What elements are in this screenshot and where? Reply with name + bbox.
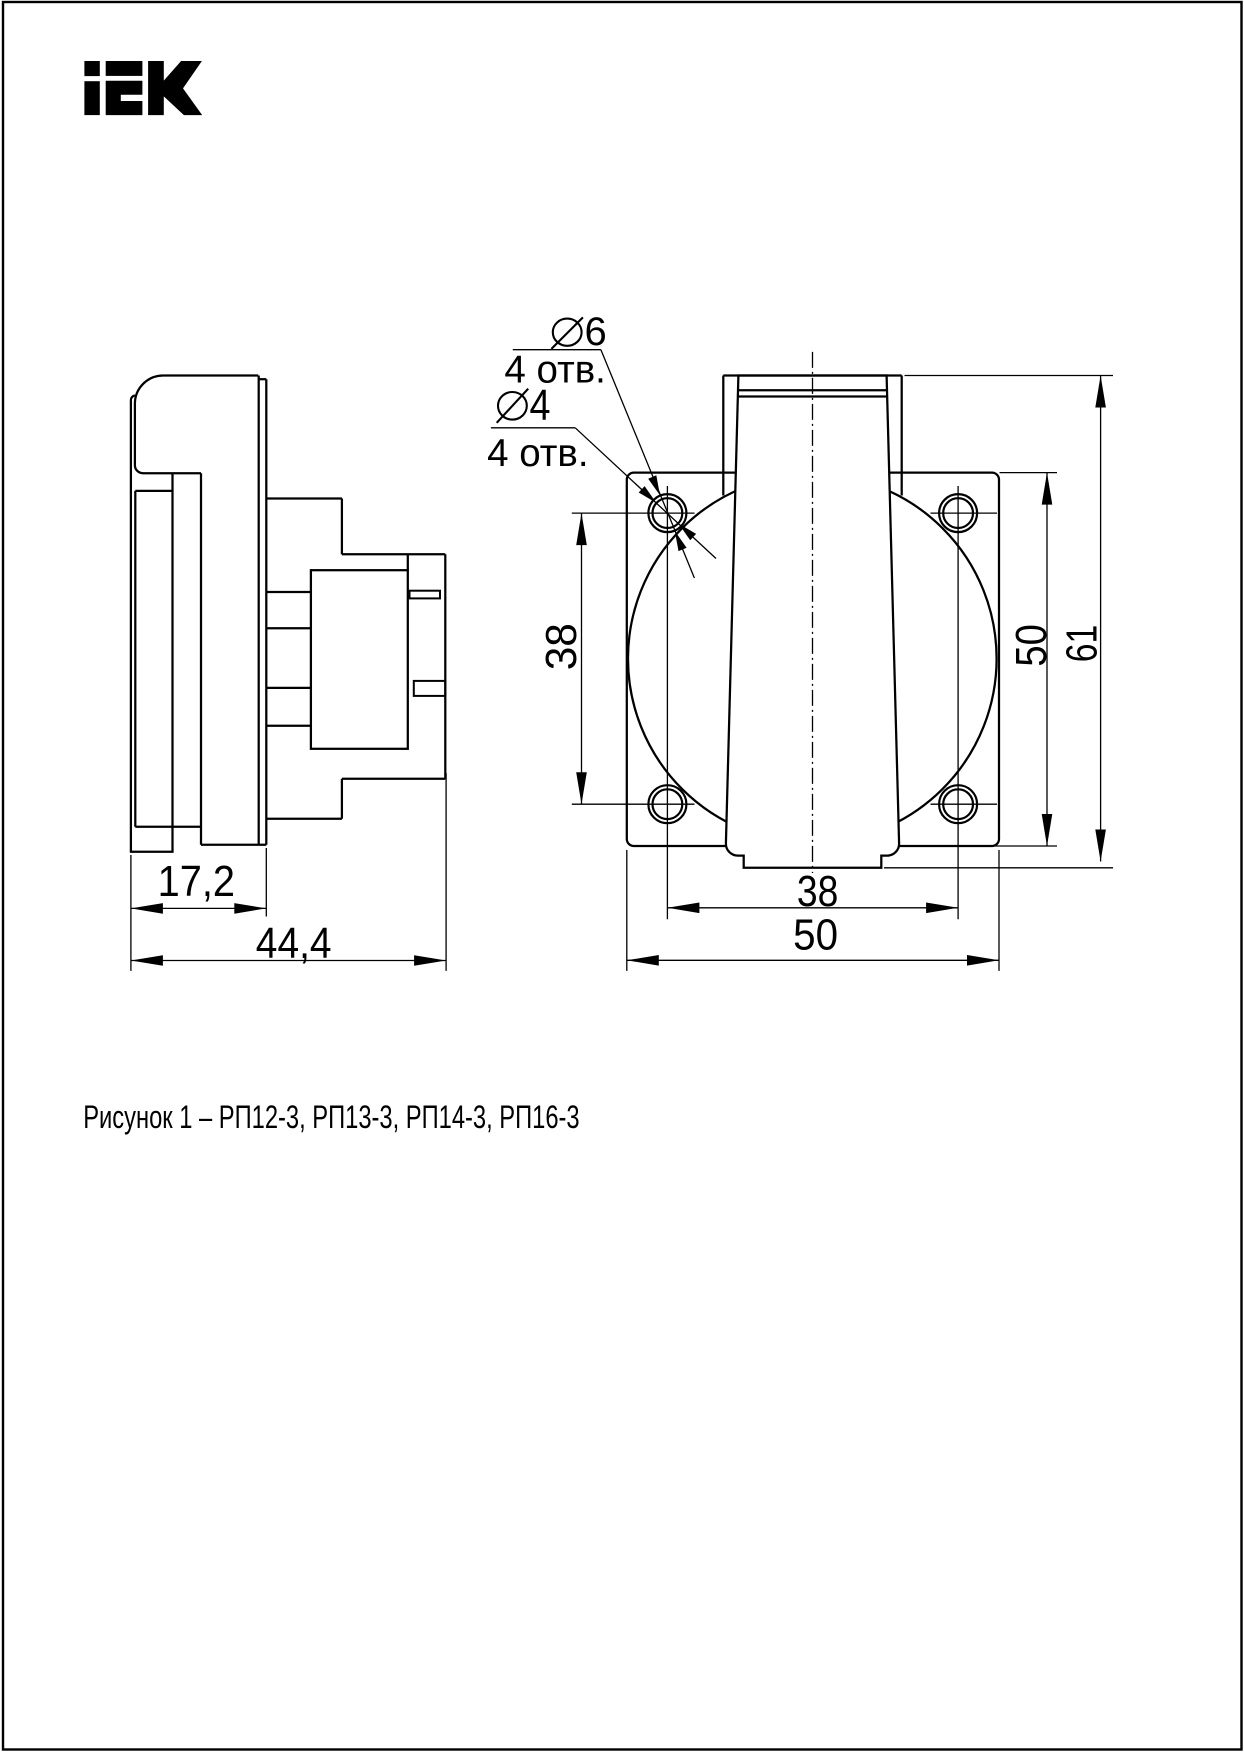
svg-text:44,4: 44,4 — [256, 919, 332, 968]
svg-text:17,2: 17,2 — [158, 857, 235, 906]
svg-text:4 отв.: 4 отв. — [504, 348, 605, 391]
svg-text:38: 38 — [537, 623, 586, 670]
svg-text:Рисунок 1 – РП12-3, РП13-3, РП: Рисунок 1 – РП12-3, РП13-3, РП14-3, РП16… — [83, 1099, 579, 1135]
svg-text:4 отв.: 4 отв. — [487, 432, 588, 475]
svg-text:4: 4 — [530, 382, 551, 430]
svg-text:38: 38 — [797, 867, 839, 916]
svg-text:50: 50 — [793, 911, 838, 960]
svg-text:50: 50 — [1007, 624, 1056, 667]
svg-text:61: 61 — [1058, 625, 1107, 663]
